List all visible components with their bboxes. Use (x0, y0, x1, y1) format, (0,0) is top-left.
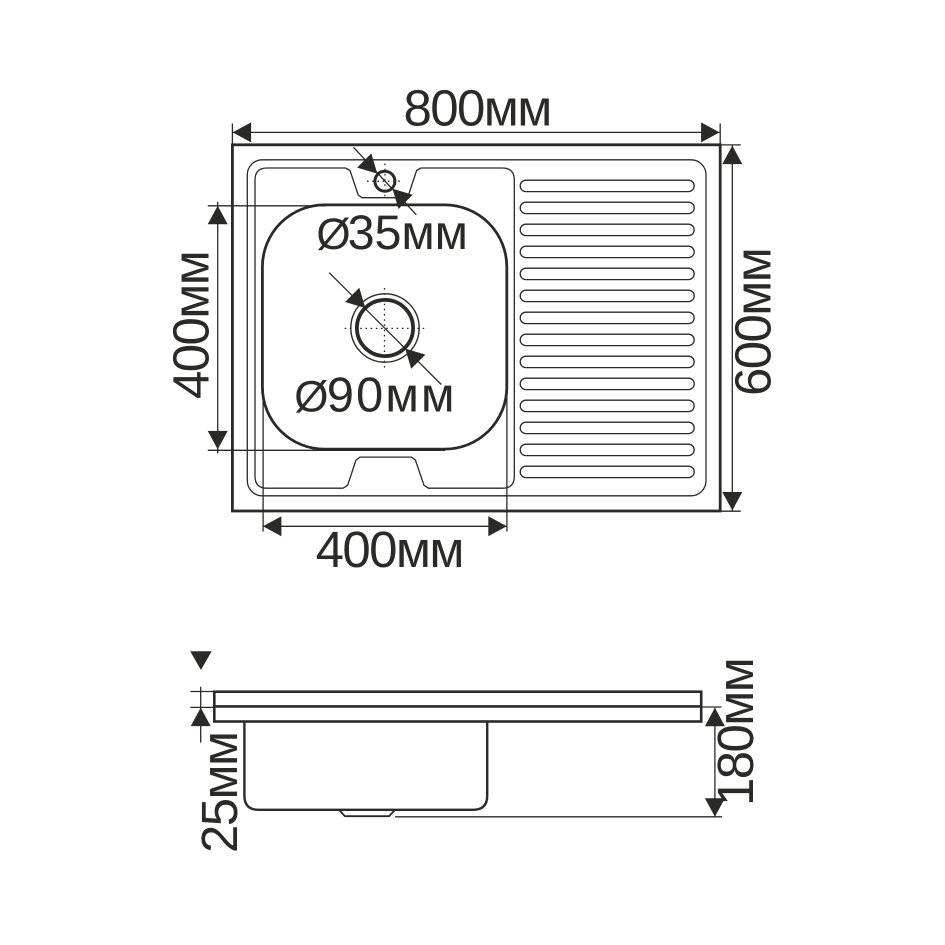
svg-text:400мм: 400мм (316, 521, 463, 578)
svg-text:25мм: 25мм (191, 733, 248, 853)
svg-text:600мм: 600мм (725, 249, 782, 396)
svg-text:180мм: 180мм (707, 659, 764, 806)
svg-text:400мм: 400мм (163, 252, 220, 399)
svg-text:Ø90мм: Ø90мм (294, 368, 456, 422)
svg-text:800мм: 800мм (404, 80, 551, 137)
svg-text:Ø35мм: Ø35мм (316, 206, 467, 260)
